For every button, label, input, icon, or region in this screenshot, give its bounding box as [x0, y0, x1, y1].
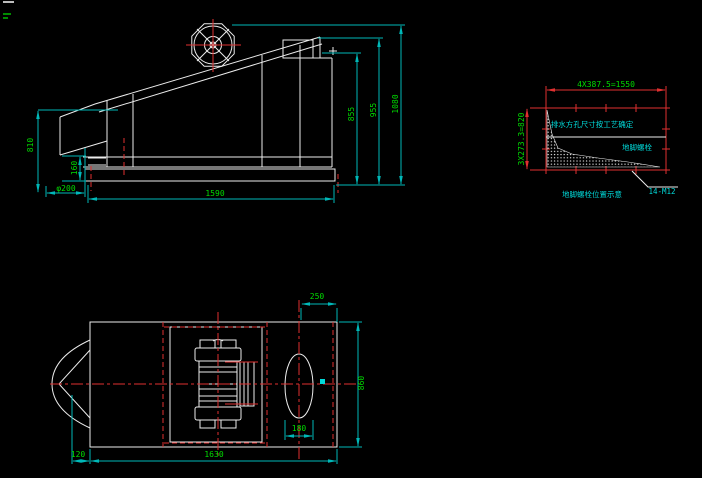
dim-label-bolt-spacing-v: 3X273.3=820: [518, 113, 526, 166]
dim-label-offset-250: 250: [310, 293, 324, 301]
stray-marks: [3, 2, 14, 18]
dim-label-bolt-spacing-h: 4X387.5=1550: [577, 81, 635, 89]
label-anchor-bolt: 地脚螺栓: [622, 144, 652, 152]
label-bolt-spec: 14-M12: [648, 188, 675, 196]
note-drain-holes: 排水方孔尺寸按工艺确定: [551, 121, 634, 129]
dim-label-height-955: 955: [370, 103, 378, 117]
dim-label-height-855: 855: [348, 107, 356, 121]
dim-label-tail-120: 120: [71, 451, 85, 459]
plan-dimension-lines: [73, 304, 358, 461]
hatched-pad-area: [547, 110, 660, 167]
dim-label-feed-height: 810: [27, 138, 35, 152]
dim-label-width-860: 860: [358, 376, 366, 390]
grip-point: [320, 379, 325, 384]
caption-bolt-layout: 地脚螺栓位置示意: [562, 191, 622, 199]
base-channel: [85, 169, 335, 181]
bolt-leader-line: [632, 171, 678, 187]
plan-extension-lines: [72, 308, 362, 464]
dim-label-hole-180: 180: [292, 425, 306, 433]
dim-label-spout-dia: φ200: [56, 185, 75, 193]
foundation-plan-drawing: [527, 86, 678, 187]
inlet-box: [283, 40, 313, 58]
dim-label-base-gap: 160: [71, 161, 79, 175]
drawing-geometry: [0, 0, 702, 478]
dim-label-length-1590: 1590: [205, 190, 224, 198]
reference-cross: [329, 47, 337, 55]
dim-label-height-1080: 1080: [392, 94, 400, 113]
screen-body-outline: [60, 37, 337, 181]
cad-drawing-canvas: 810 160 φ200 1590 855 955 1080 4X387.5=1…: [0, 0, 702, 478]
plan-view-drawing: [50, 300, 362, 464]
dim-label-length-1630: 1630: [204, 451, 223, 459]
